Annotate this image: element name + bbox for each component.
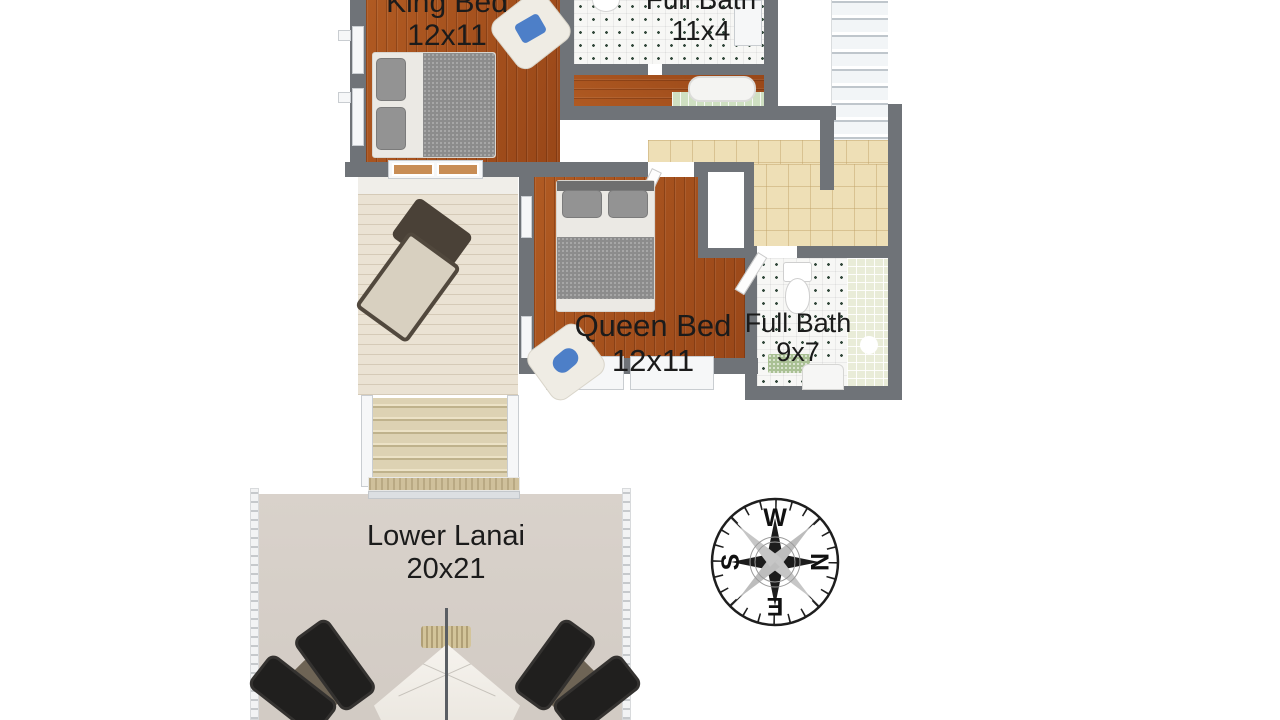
room-dimensions: 11x4 — [646, 15, 757, 46]
umbrella-pole — [445, 608, 448, 720]
room-label-lower-bath: Full Bath 9x7 — [745, 309, 852, 367]
bench — [368, 477, 520, 491]
shower-floor — [847, 258, 888, 386]
bed-pillow — [562, 190, 602, 218]
bed-pillow — [376, 58, 406, 101]
stair-stringer — [361, 395, 373, 487]
compass-letter-north: N — [805, 553, 833, 571]
wall — [560, 64, 764, 75]
queen-bed — [556, 180, 655, 312]
room-name: Queen Bed — [575, 308, 732, 343]
floor-plan: King Bed 12x11 Full Bath 11x4 Queen Bed … — [0, 0, 1280, 720]
room-label-lanai: Lower Lanai 20x21 — [367, 520, 525, 586]
window-sill — [338, 30, 351, 41]
bed-duvet — [423, 53, 495, 157]
room-label-queen: Queen Bed 12x11 — [575, 308, 732, 378]
room-label-upper-bath: Full Bath 11x4 — [646, 0, 757, 46]
room-dimensions: 12x11 — [575, 343, 732, 378]
blue-pillow — [514, 13, 548, 45]
bed-pillow — [608, 190, 648, 218]
bed-pillow — [376, 107, 406, 150]
window-sill — [338, 92, 351, 103]
closet — [698, 162, 754, 258]
wall — [820, 106, 834, 190]
wall — [764, 0, 778, 108]
vanity-sink — [802, 364, 844, 390]
sliding-door-panel — [392, 163, 434, 176]
compass-letter-south: S — [717, 554, 745, 571]
bathtub-icon — [688, 76, 756, 102]
door-opening — [648, 64, 662, 75]
stair-stringer — [507, 395, 519, 487]
king-bed — [372, 52, 496, 158]
room-name: Full Bath — [745, 309, 852, 338]
room-dimensions: 12x11 — [386, 19, 508, 52]
bed-duvet — [557, 237, 654, 299]
room-label-king: King Bed 12x11 — [386, 0, 508, 52]
room-dimensions: 20x21 — [367, 553, 525, 586]
bench-frame — [368, 491, 520, 499]
compass-letter-east: E — [767, 592, 784, 620]
room-name: Full Bath — [646, 0, 757, 15]
shower-drain — [860, 336, 878, 354]
window — [521, 196, 532, 238]
window — [352, 88, 364, 146]
stair-stringer — [823, 0, 832, 110]
exterior-stairs — [373, 398, 507, 486]
sliding-door-panel — [437, 163, 479, 176]
sink-icon — [592, 0, 620, 12]
room-name: Lower Lanai — [367, 520, 525, 553]
wall — [560, 106, 836, 120]
compass-rose: W N E S — [705, 492, 845, 632]
deck-threshold — [358, 177, 518, 194]
upper-hall-tile — [648, 140, 888, 164]
compass-letter-west: W — [763, 504, 787, 532]
room-dimensions: 9x7 — [745, 338, 852, 367]
room-name: King Bed — [386, 0, 508, 19]
window — [352, 26, 364, 74]
